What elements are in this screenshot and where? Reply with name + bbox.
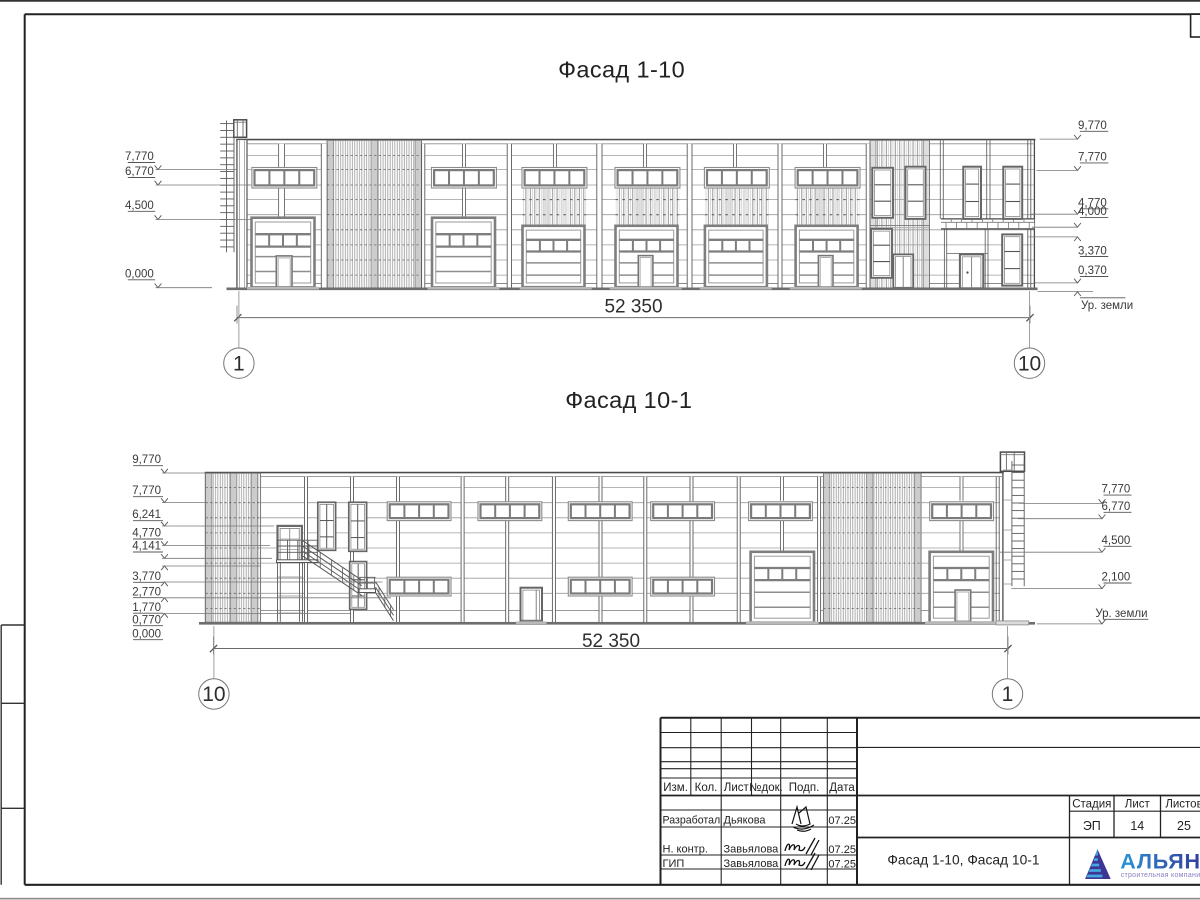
svg-text:10: 10	[1018, 352, 1041, 375]
svg-text:2,100: 2,100	[1102, 572, 1131, 584]
svg-text:1: 1	[233, 352, 245, 375]
svg-text:ГИП: ГИП	[663, 858, 685, 870]
svg-text:1,770: 1,770	[132, 602, 161, 614]
svg-text:Завьялова: Завьялова	[724, 844, 780, 856]
svg-text:Ур. земли: Ур. земли	[1081, 300, 1133, 312]
svg-text:7,770: 7,770	[1078, 151, 1107, 163]
svg-text:14: 14	[1130, 819, 1144, 833]
svg-text:ЭП: ЭП	[1083, 819, 1101, 833]
svg-text:Н. контр.: Н. контр.	[663, 844, 708, 856]
svg-text:1: 1	[1002, 683, 1014, 706]
svg-text:№док.: №док.	[749, 782, 783, 794]
svg-text:Разработал: Разработал	[663, 815, 721, 827]
svg-text:0,370: 0,370	[1078, 265, 1107, 277]
svg-text:Листов: Листов	[1165, 799, 1200, 811]
svg-text:6,241: 6,241	[132, 509, 161, 521]
svg-text:3,370: 3,370	[1078, 245, 1107, 257]
svg-text:Лист: Лист	[724, 782, 750, 794]
svg-text:Фасад 1-10, Фасад 10-1: Фасад 1-10, Фасад 10-1	[887, 853, 1039, 868]
svg-text:2,770: 2,770	[132, 587, 161, 599]
svg-text:7,770: 7,770	[125, 151, 154, 163]
svg-text:Кол.: Кол.	[695, 782, 718, 794]
svg-text:Подп.: Подп.	[789, 782, 820, 794]
svg-text:4,141: 4,141	[132, 541, 161, 553]
svg-text:10: 10	[202, 683, 225, 706]
svg-text:АЛЬЯНС: АЛЬЯНС	[1120, 850, 1200, 874]
svg-text:9,770: 9,770	[1078, 120, 1107, 132]
svg-text:07.25: 07.25	[828, 815, 856, 827]
svg-text:Фасад 10-1: Фасад 10-1	[565, 387, 692, 413]
svg-text:Лист: Лист	[1125, 799, 1151, 811]
svg-text:7,770: 7,770	[1102, 484, 1131, 496]
svg-text:4,500: 4,500	[125, 200, 154, 212]
svg-text:4,500: 4,500	[1102, 535, 1131, 547]
svg-text:7,770: 7,770	[132, 485, 161, 497]
svg-text:Дьякова: Дьякова	[724, 815, 767, 827]
svg-text:52 350: 52 350	[582, 631, 640, 652]
svg-text:9,770: 9,770	[132, 454, 161, 466]
svg-text:Завьялова: Завьялова	[724, 858, 780, 870]
svg-text:Дата: Дата	[829, 782, 855, 794]
svg-text:Фасад 1-10: Фасад 1-10	[558, 57, 685, 83]
svg-text:0,000: 0,000	[132, 629, 161, 641]
svg-text:07.25: 07.25	[828, 844, 856, 856]
svg-text:строительная компания: строительная компания	[1121, 872, 1200, 879]
svg-text:52 350: 52 350	[604, 296, 662, 317]
svg-text:0,770: 0,770	[132, 615, 161, 627]
svg-text:4,770: 4,770	[132, 528, 161, 540]
svg-text:6,770: 6,770	[1102, 501, 1131, 513]
svg-text:3,770: 3,770	[132, 571, 161, 583]
svg-text:Стадия: Стадия	[1072, 799, 1111, 811]
svg-text:25: 25	[1177, 819, 1191, 833]
svg-text:4,000: 4,000	[1078, 206, 1107, 218]
svg-text:Изм.: Изм.	[663, 782, 688, 794]
svg-text:0,000: 0,000	[125, 268, 154, 280]
svg-text:07.25: 07.25	[828, 858, 856, 870]
svg-text:6,770: 6,770	[125, 166, 154, 178]
svg-text:Ур. земли: Ур. земли	[1095, 608, 1147, 620]
